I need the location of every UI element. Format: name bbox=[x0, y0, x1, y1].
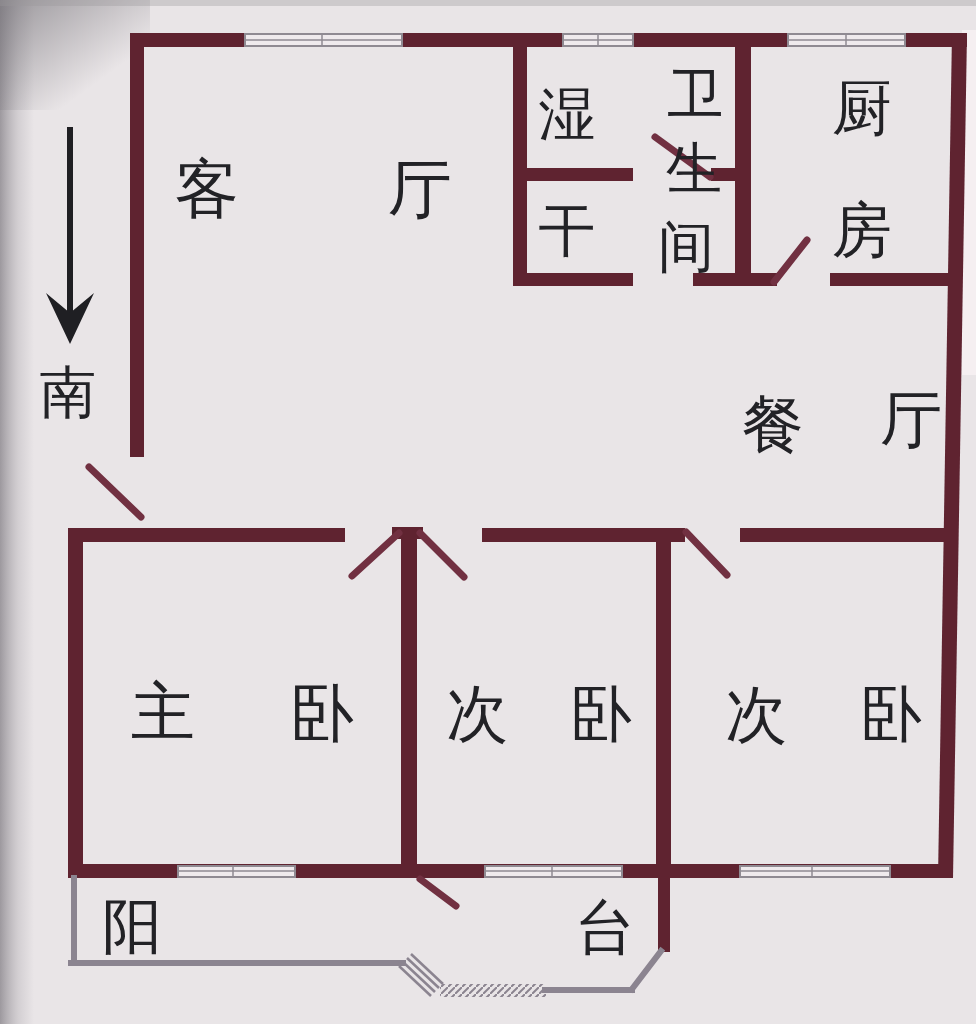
wall-left-lower-exterior bbox=[68, 528, 83, 878]
label-master-1: 主 bbox=[131, 675, 195, 749]
floor-plan-drawing: 南 客 厅 湿 干 卫 生 间 厨 房 餐 厅 主 卧 次 卧 次 卧 阳 台 bbox=[0, 0, 976, 1024]
label-living-2: 厅 bbox=[388, 152, 452, 226]
label-balcony-1: 阳 bbox=[102, 891, 162, 961]
floor-plan: 南 客 厅 湿 干 卫 生 间 厨 房 餐 厅 主 卧 次 卧 次 卧 阳 台 bbox=[0, 0, 976, 1024]
wall-hall-segment-1 bbox=[68, 528, 345, 542]
photo-top-edge-shadow bbox=[0, 0, 976, 6]
label-master-2: 卧 bbox=[290, 676, 354, 750]
wall-left-upper-exterior bbox=[130, 33, 144, 457]
label-bath-1: 卫 bbox=[667, 61, 723, 126]
label-dining-1: 餐 bbox=[742, 388, 804, 461]
photo-left-edge-shadow bbox=[0, 0, 34, 1024]
wall-wet-dry-divider bbox=[513, 168, 633, 181]
window-master-bedroom bbox=[178, 866, 295, 877]
label-bed2-2: 卧 bbox=[570, 677, 632, 750]
label-bed3-1: 次 bbox=[725, 678, 787, 751]
wall-living-wetroom bbox=[513, 33, 527, 283]
label-bed2-1: 次 bbox=[446, 677, 508, 750]
window-living bbox=[245, 34, 402, 46]
wall-bathroom-kitchen bbox=[735, 33, 751, 285]
label-bath-2: 生 bbox=[666, 136, 722, 201]
wall-dryroom-bottom bbox=[513, 273, 633, 286]
label-bed3-2: 卧 bbox=[860, 677, 922, 750]
label-living-1: 客 bbox=[175, 152, 239, 226]
wall-kitchen-bottom bbox=[830, 273, 960, 286]
window-kitchen bbox=[788, 34, 905, 46]
wall-bed2-bed3-divider bbox=[656, 528, 671, 878]
wall-balcony-divider bbox=[658, 878, 670, 952]
label-balcony-2: 台 bbox=[575, 892, 635, 962]
label-wet: 湿 bbox=[539, 81, 596, 147]
wall-master-bed2-divider bbox=[401, 528, 417, 875]
label-dry: 干 bbox=[539, 197, 596, 263]
label-kitchen-1: 厨 bbox=[832, 73, 892, 143]
compass-south-label: 南 bbox=[40, 359, 97, 425]
label-kitchen-2: 房 bbox=[832, 195, 892, 265]
balcony-threshold-hatch bbox=[440, 984, 546, 997]
photo-topleft-shadow bbox=[0, 0, 150, 110]
label-dining-2: 厅 bbox=[880, 383, 942, 456]
wall-hall-segment-3 bbox=[740, 528, 948, 542]
window-second-bedroom bbox=[485, 866, 622, 877]
wall-hall-segment-2 bbox=[482, 528, 685, 542]
label-bath-3: 间 bbox=[658, 214, 714, 279]
window-third-bedroom bbox=[740, 866, 890, 877]
window-wet-area bbox=[563, 34, 633, 46]
